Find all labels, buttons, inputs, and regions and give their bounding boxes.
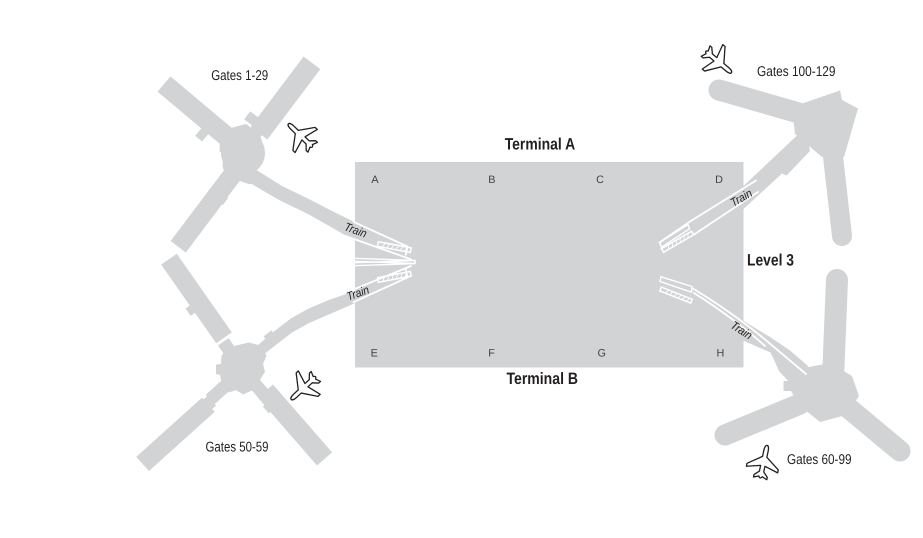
svg-text:G: G: [598, 348, 606, 360]
svg-text:D: D: [715, 174, 723, 186]
svg-text:Gates 1-29: Gates 1-29: [211, 68, 268, 84]
svg-text:F: F: [488, 348, 495, 360]
svg-text:Level 3: Level 3: [747, 252, 794, 270]
svg-text:Gates 50-59: Gates 50-59: [206, 440, 269, 456]
svg-text:Gates 100-129: Gates 100-129: [757, 64, 836, 80]
svg-text:E: E: [371, 348, 378, 360]
svg-text:Gates 60-99: Gates 60-99: [787, 452, 852, 468]
svg-text:A: A: [371, 174, 379, 186]
svg-text:B: B: [488, 174, 495, 186]
svg-text:Terminal B: Terminal B: [507, 370, 579, 388]
svg-text:C: C: [596, 174, 604, 186]
svg-text:H: H: [717, 348, 725, 360]
svg-text:Terminal A: Terminal A: [505, 135, 576, 153]
